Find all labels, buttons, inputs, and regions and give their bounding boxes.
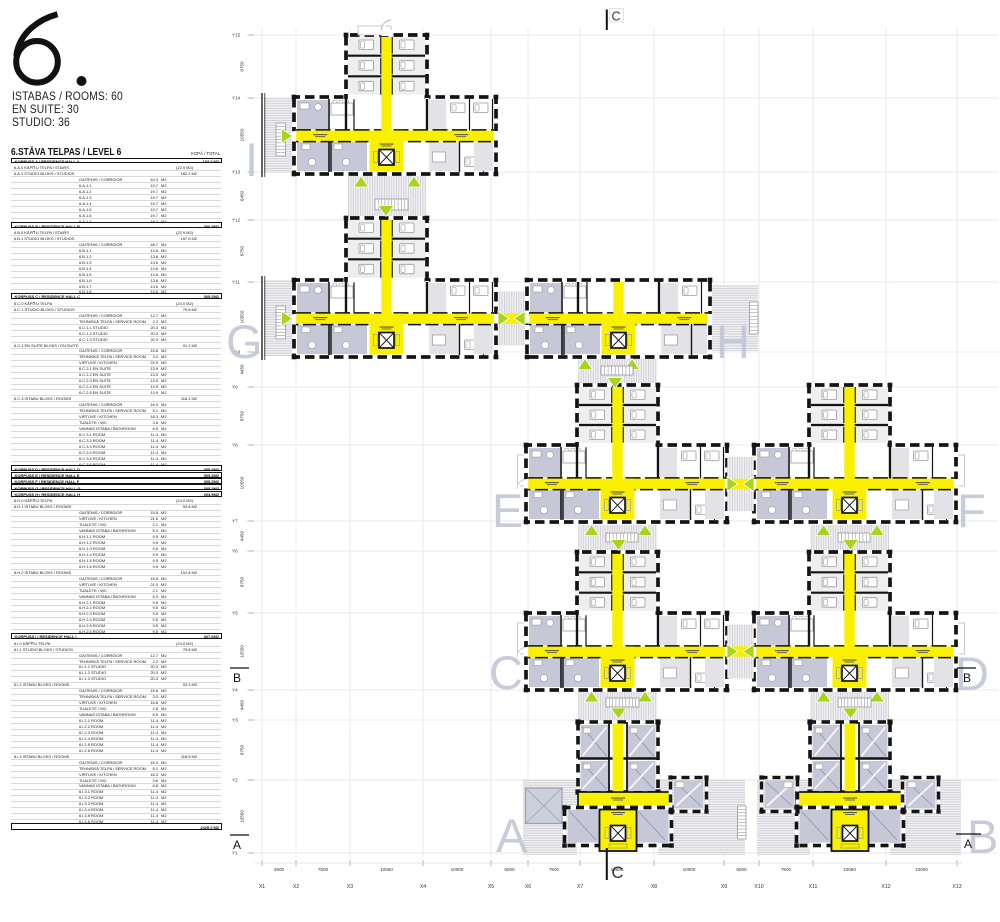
svg-text:X12: X12 [881, 884, 890, 890]
svg-text:Y5: Y5 [232, 611, 238, 616]
svg-text:X8: X8 [651, 884, 657, 890]
svg-text:B: B [233, 671, 241, 685]
svg-text:X9: X9 [721, 884, 727, 890]
svg-text:8750: 8750 [240, 61, 245, 72]
svg-text:8750: 8750 [240, 744, 245, 755]
svg-text:I: I [245, 133, 258, 186]
svg-text:8750: 8750 [240, 576, 245, 587]
svg-text:D: D [955, 647, 989, 700]
svg-text:A: A [964, 837, 972, 851]
svg-text:Y7: Y7 [232, 519, 238, 524]
svg-text:X1: X1 [259, 884, 265, 890]
svg-text:E: E [492, 484, 523, 537]
svg-text:X11: X11 [809, 884, 818, 890]
svg-text:10000: 10000 [915, 867, 928, 872]
svg-text:B: B [963, 671, 971, 685]
svg-text:X10: X10 [754, 884, 763, 890]
svg-text:10550: 10550 [240, 645, 245, 658]
svg-text:4900: 4900 [274, 867, 285, 872]
svg-text:5000: 5000 [736, 867, 747, 872]
svg-text:7500: 7500 [549, 867, 560, 872]
svg-text:Y4: Y4 [232, 688, 238, 693]
svg-text:X3: X3 [347, 884, 353, 890]
svg-text:10550: 10550 [240, 810, 245, 823]
svg-text:X2: X2 [293, 884, 299, 890]
svg-text:H: H [716, 315, 750, 368]
svg-text:Y9: Y9 [232, 385, 238, 390]
svg-text:7500: 7500 [318, 867, 329, 872]
svg-text:10000: 10000 [451, 867, 464, 872]
svg-text:Y11: Y11 [232, 280, 240, 285]
svg-text:4450: 4450 [240, 699, 245, 710]
svg-text:A: A [233, 838, 241, 852]
svg-text:10550: 10550 [380, 867, 393, 872]
svg-text:C: C [489, 646, 523, 699]
svg-text:10000: 10000 [683, 867, 696, 872]
svg-text:4450: 4450 [240, 530, 245, 541]
svg-text:Y12: Y12 [232, 218, 241, 223]
svg-text:Y15: Y15 [232, 33, 241, 38]
svg-text:5000: 5000 [504, 867, 515, 872]
svg-text:X5: X5 [488, 884, 494, 890]
svg-text:6450: 6450 [240, 190, 245, 201]
svg-text:8750: 8750 [240, 245, 245, 256]
svg-text:X7: X7 [577, 884, 583, 890]
svg-text:C: C [612, 10, 621, 24]
svg-text:10550: 10550 [843, 867, 856, 872]
svg-text:Y6: Y6 [232, 549, 238, 554]
svg-text:Y8: Y8 [232, 443, 238, 448]
svg-text:Y14: Y14 [232, 96, 241, 101]
svg-text:C: C [612, 864, 624, 882]
svg-text:7500: 7500 [781, 867, 792, 872]
svg-text:8750: 8750 [240, 410, 245, 421]
svg-text:G: G [226, 315, 263, 368]
svg-text:X6: X6 [525, 884, 531, 890]
svg-text:X13: X13 [952, 884, 961, 890]
svg-text:10550: 10550 [240, 476, 245, 489]
svg-text:A: A [496, 809, 528, 862]
svg-text:Y2: Y2 [232, 778, 238, 783]
svg-text:10550: 10550 [240, 128, 245, 141]
svg-text:Y13: Y13 [232, 170, 241, 175]
svg-text:F: F [957, 484, 986, 537]
svg-text:Y3: Y3 [232, 718, 238, 723]
svg-text:X4: X4 [420, 884, 426, 890]
